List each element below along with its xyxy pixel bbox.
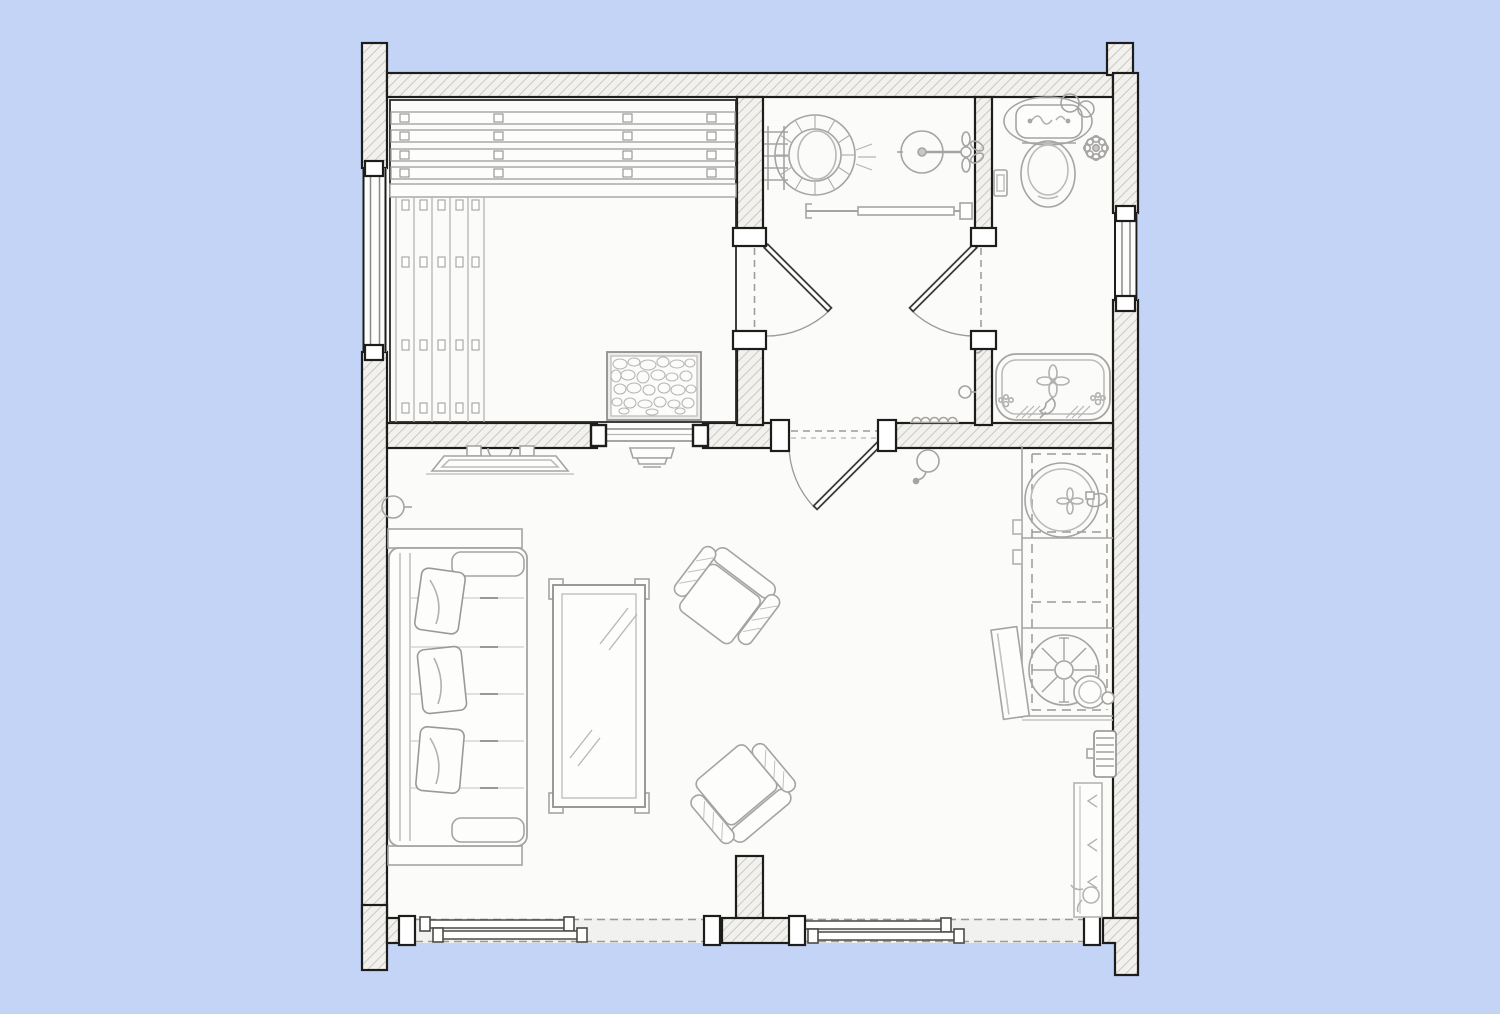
- sauna-rock-heater: [607, 352, 701, 420]
- wall-washroom-bath-upper: [975, 97, 992, 230]
- sauna-pass-through-window: [591, 424, 708, 447]
- pillar-top-left: [362, 43, 387, 168]
- sliding-door-set-right[interactable]: [795, 918, 1084, 943]
- toilet-brush-holder: [994, 170, 1007, 196]
- window-right: [1114, 206, 1138, 311]
- pillar-bottom-left: [362, 905, 387, 970]
- wall-interior-h-left: [387, 423, 597, 448]
- coffee-table: [549, 579, 649, 813]
- planter: [1071, 783, 1102, 917]
- wall-left: [362, 352, 387, 918]
- wall-washroom-bath-lower: [975, 347, 992, 425]
- sofa-pillows: [414, 567, 467, 794]
- wall-sauna-washroom-lower: [737, 347, 763, 425]
- floor-plan-canvas: [0, 0, 1500, 1014]
- sliding-door-set-left[interactable]: [414, 917, 706, 943]
- wall-top: [387, 73, 1113, 97]
- wall-interior-h-mid: [703, 423, 773, 448]
- window-left: [363, 161, 387, 360]
- wall-right-lower: [1113, 300, 1138, 918]
- floor-plan-drawing: [0, 0, 1500, 1014]
- pillar-bottom-right: [1103, 918, 1138, 975]
- wall-right-upper: [1113, 73, 1138, 213]
- pillar-top-right: [1107, 43, 1133, 75]
- wall-sauna-washroom-upper: [737, 97, 763, 230]
- pillar-bottom-middle: [736, 856, 763, 920]
- pillar-bottom-middle-flange: [722, 918, 790, 943]
- sofa: [388, 529, 527, 865]
- wall-interior-h-right: [896, 423, 1113, 448]
